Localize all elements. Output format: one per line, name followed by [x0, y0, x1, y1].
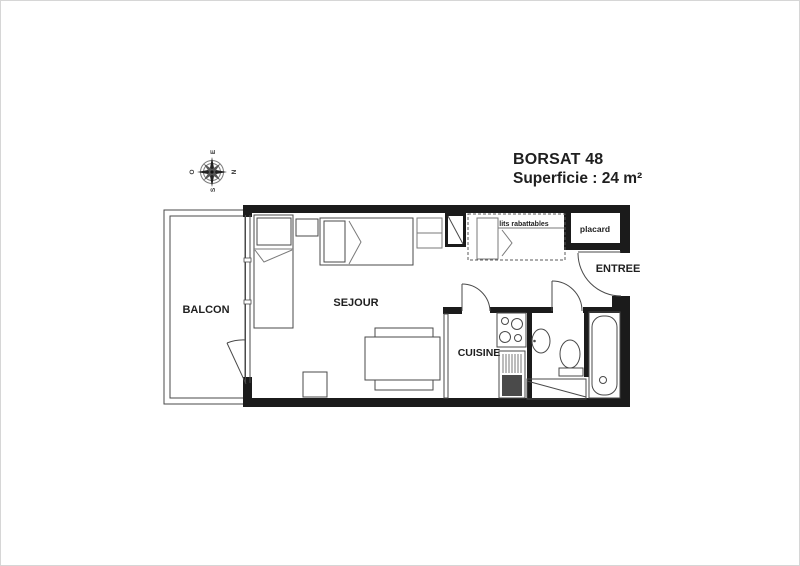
- entrance-label: ENTREE: [596, 263, 641, 275]
- floor-plan-page: BORSAT 48 Superficie : 24 m² E N S: [0, 0, 800, 566]
- plan-surface: Superficie : 24 m²: [513, 170, 642, 187]
- stove-icon: [497, 313, 526, 347]
- sejour-area: SEJOUR: [254, 215, 442, 397]
- sejour-label: SEJOUR: [333, 297, 378, 309]
- shelf-icon: [417, 218, 442, 248]
- sink-icon: [532, 329, 550, 353]
- toilet-icon: [559, 340, 583, 376]
- closet-area: placard: [564, 213, 622, 250]
- balcony-door: [227, 340, 246, 384]
- title-block: BORSAT 48 Superficie : 24 m²: [513, 151, 642, 187]
- plan-title: BORSAT 48: [513, 151, 603, 168]
- bed-horizontal-icon: [320, 218, 413, 265]
- foldaway-beds-label: lits rabattables: [499, 221, 549, 228]
- table-icon: [365, 328, 440, 390]
- entrance-door: ENTREE: [578, 252, 640, 296]
- balcony-label: BALCON: [182, 304, 229, 316]
- nightstand-icon: [296, 219, 318, 236]
- appliance-icon: [499, 351, 525, 398]
- compass-right-label: N: [231, 169, 238, 174]
- exterior-walls: [243, 205, 630, 407]
- compass-rose-icon: E N S O: [189, 149, 238, 192]
- kitchen-door: [462, 284, 490, 311]
- bed-vertical-icon: [254, 215, 293, 328]
- floor-plan-drawing: BORSAT 48 Superficie : 24 m² E N S: [0, 0, 800, 566]
- compass-left-label: O: [189, 169, 196, 174]
- shower-mat-icon: [527, 379, 586, 399]
- foldaway-beds-area: lits rabattables: [468, 214, 565, 260]
- compass-bottom-label: S: [210, 187, 217, 192]
- closet-label: placard: [580, 224, 610, 234]
- kitchen-label: CUISINE: [458, 347, 501, 359]
- balcony-window: [244, 215, 251, 383]
- niche-door-icon: [445, 213, 466, 247]
- balcony-area: BALCON: [164, 210, 245, 404]
- bathroom-area: [527, 312, 620, 399]
- kitchen-area: CUISINE: [458, 313, 526, 398]
- compass-top-label: E: [210, 149, 217, 154]
- bathtub-icon: [589, 312, 620, 398]
- bathroom-door: [552, 281, 582, 311]
- stool-icon: [303, 372, 327, 397]
